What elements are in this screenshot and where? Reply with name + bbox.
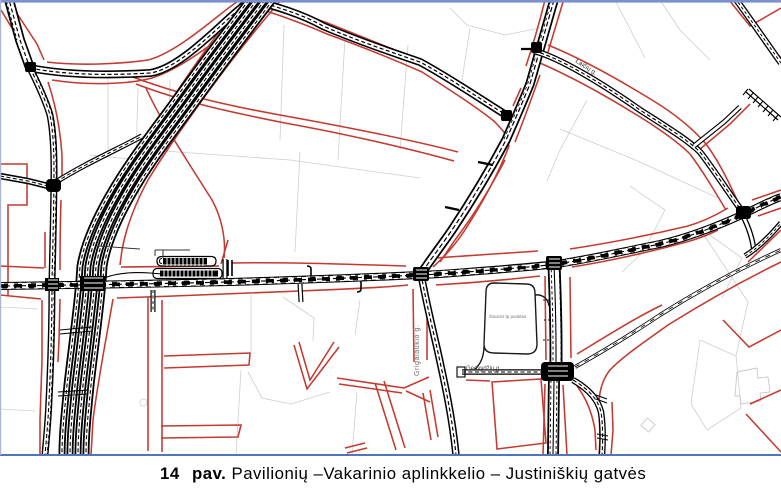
svg-text:Gedvydžių g.: Gedvydžių g. xyxy=(466,366,501,372)
svg-text:Šiaurės tp punktas: Šiaurės tp punktas xyxy=(489,313,527,319)
svg-text:Grigalaukio g.: Grigalaukio g. xyxy=(414,324,421,376)
